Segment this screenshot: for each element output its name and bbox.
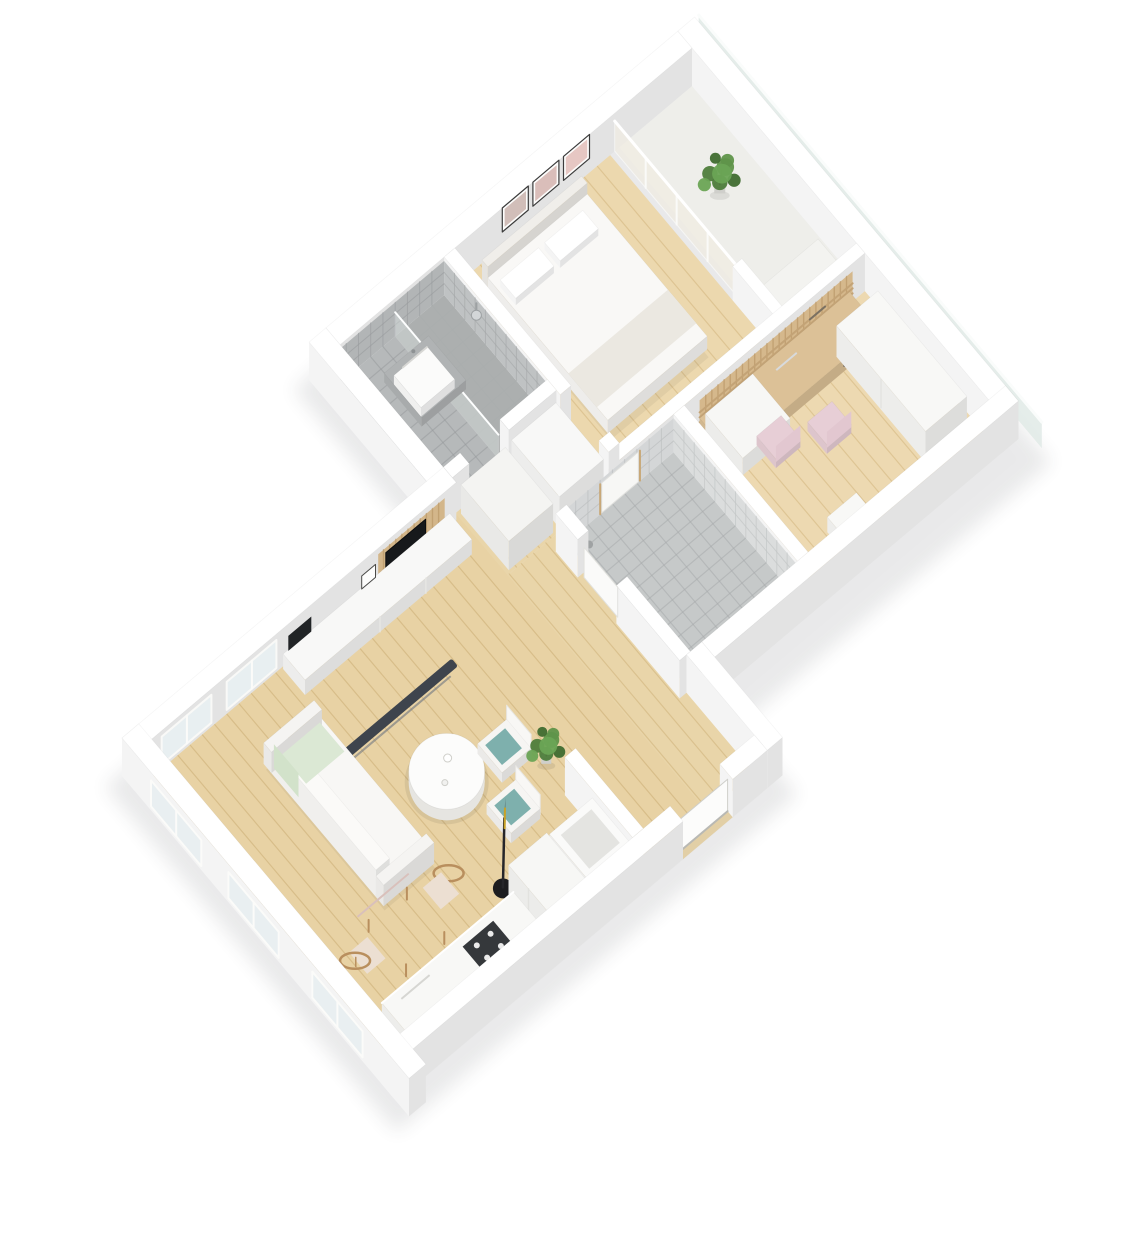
apartment-floorplan-figure — [0, 0, 1140, 1259]
burner-3 — [474, 942, 480, 948]
apartment-3d-floorplan — [0, 0, 1140, 1259]
coffee-cup-1 — [444, 754, 452, 762]
shower-head — [471, 310, 481, 320]
coffee-table — [409, 733, 485, 820]
scene-root — [105, 15, 1051, 1132]
washbasin-faucet — [411, 349, 415, 353]
burner-1 — [488, 931, 494, 937]
coffee-cup-2 — [442, 780, 448, 786]
